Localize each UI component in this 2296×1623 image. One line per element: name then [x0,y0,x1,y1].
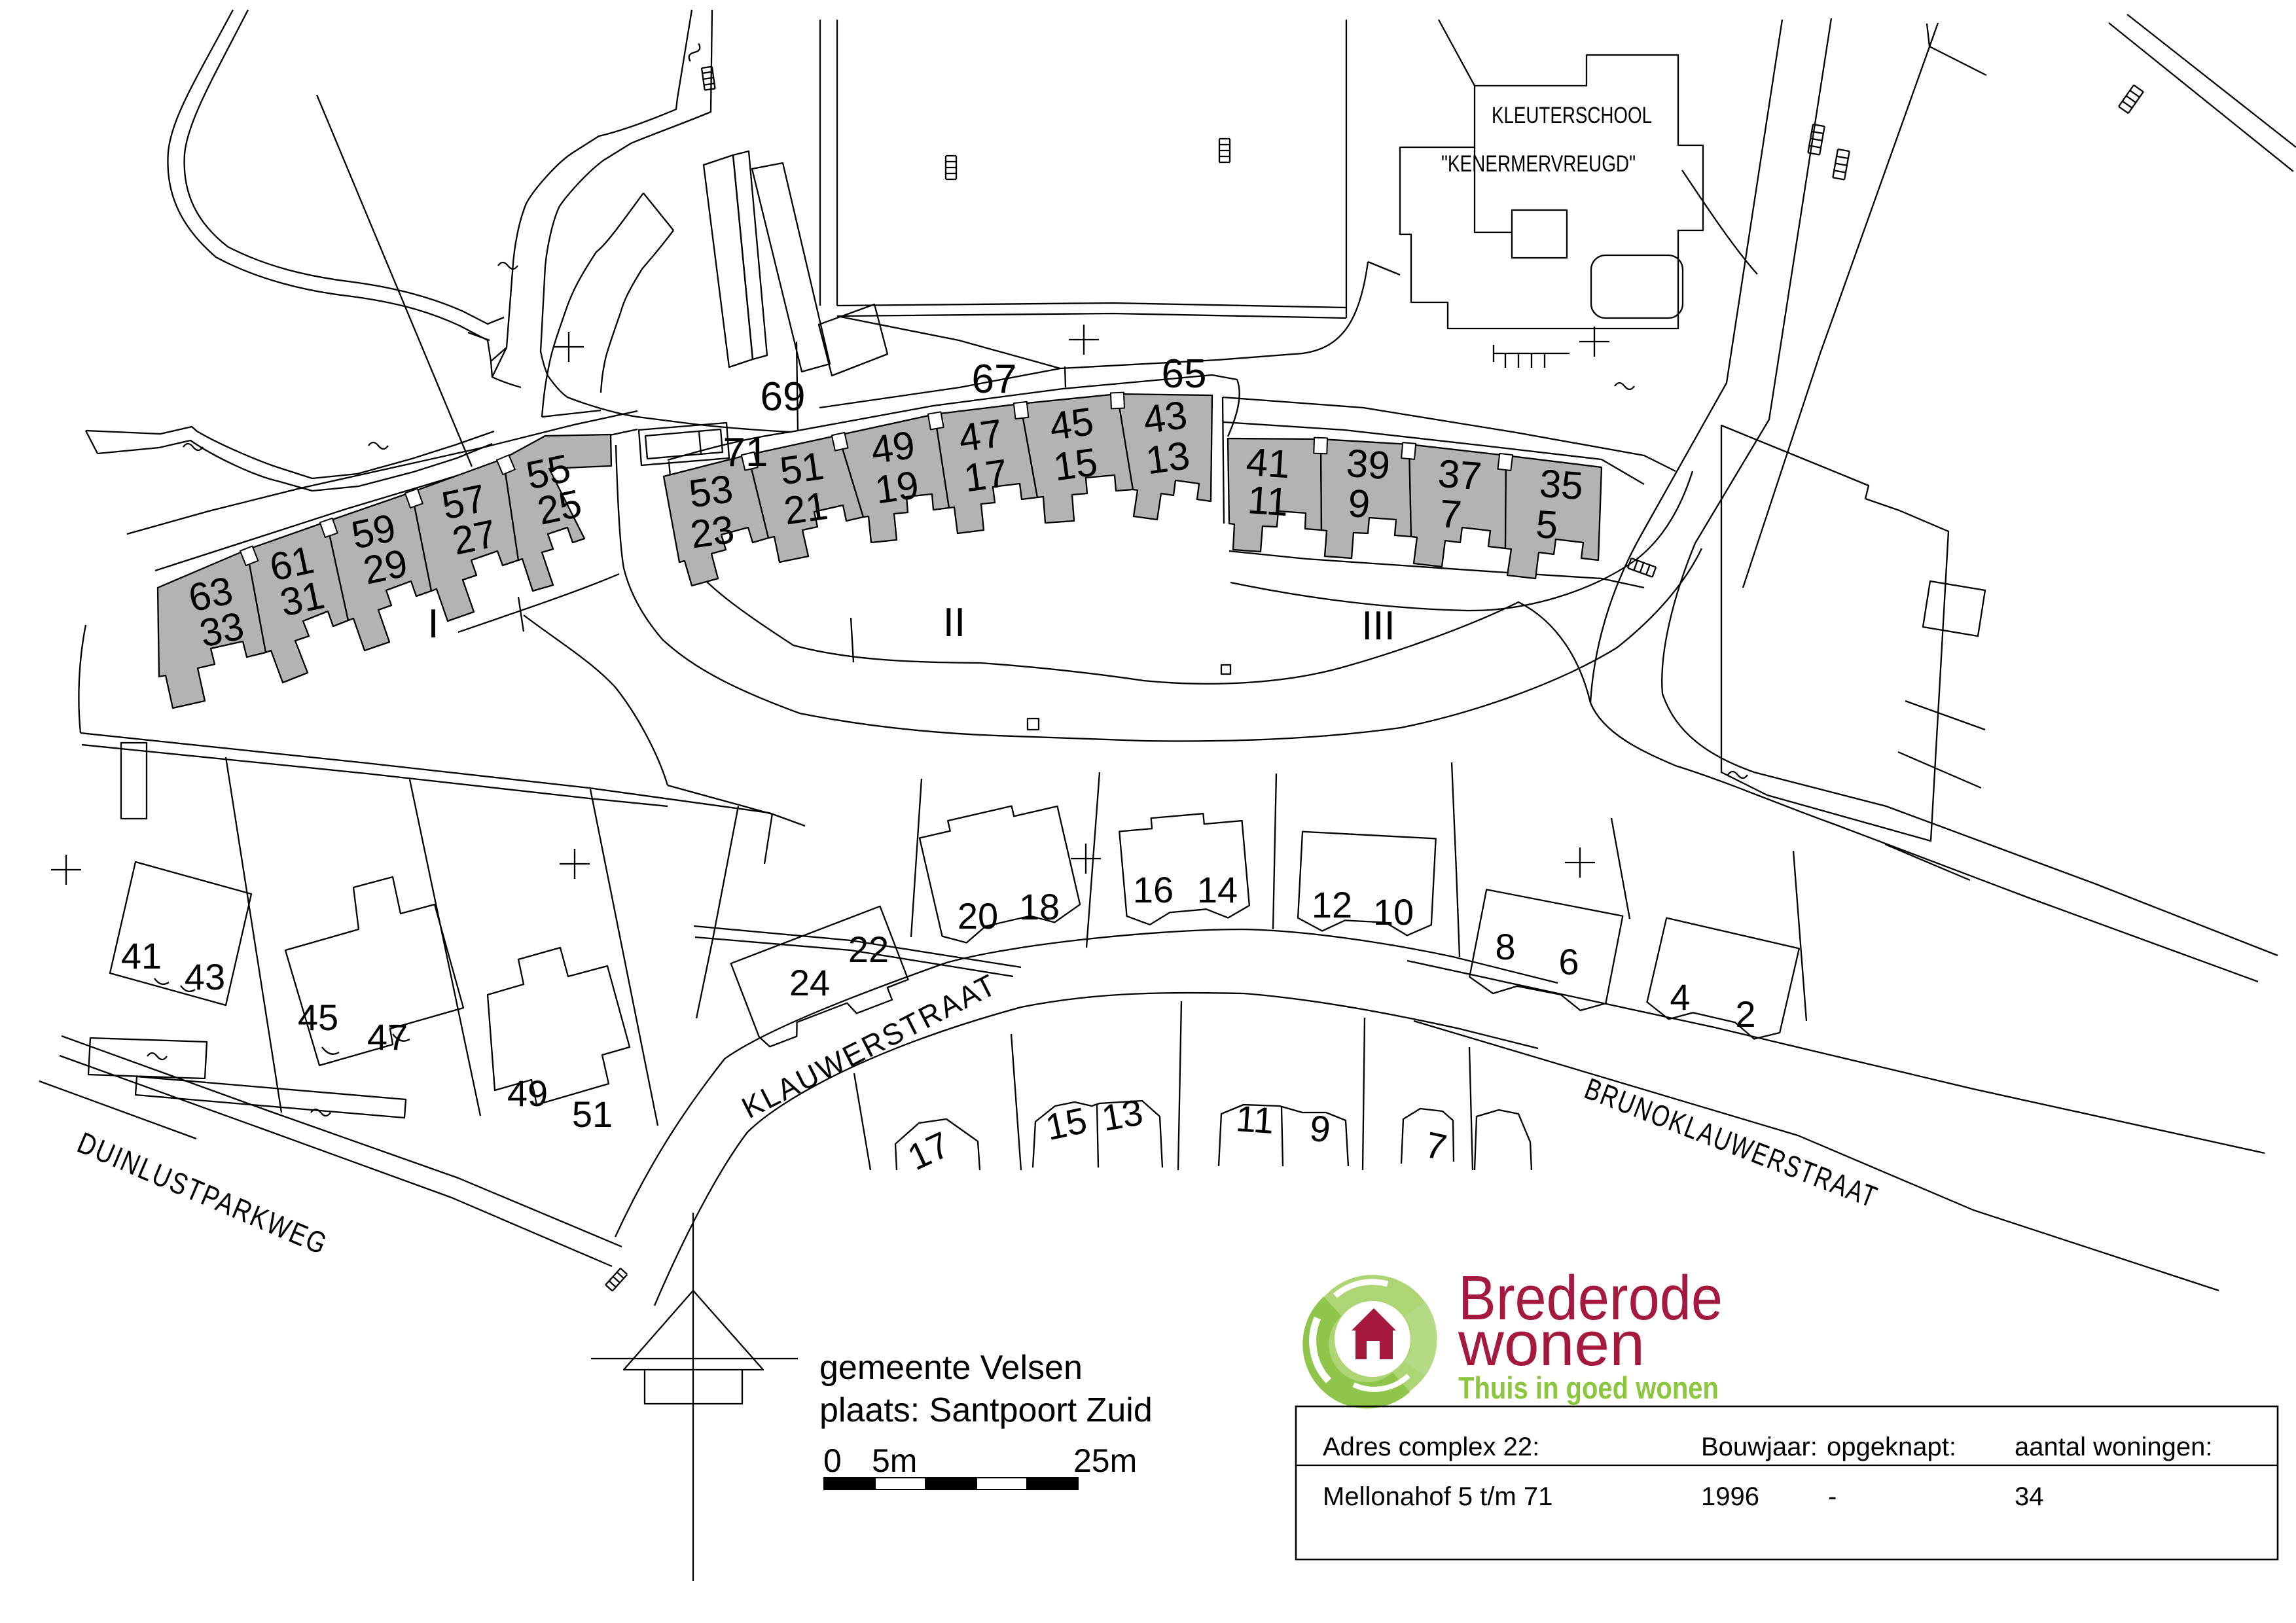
svg-text:9: 9 [1308,1107,1333,1150]
svg-text:aantal woningen:: aantal woningen: [2015,1433,2212,1461]
svg-text:11: 11 [1246,478,1290,524]
svg-text:34: 34 [2015,1482,2044,1511]
svg-text:-: - [1828,1482,1837,1511]
svg-text:17: 17 [961,451,1010,501]
svg-text:18: 18 [1019,886,1060,927]
svg-text:4: 4 [1670,976,1690,1018]
svg-text:0: 0 [823,1442,842,1479]
svg-text:67: 67 [972,357,1017,402]
svg-text:16: 16 [1133,869,1174,910]
svg-text:25: 25 [533,481,585,533]
svg-text:25m: 25m [1073,1442,1137,1479]
svg-text:12: 12 [1312,884,1352,925]
svg-text:69: 69 [761,374,806,419]
svg-text:19: 19 [872,463,921,512]
svg-text:24: 24 [789,962,830,1003]
svg-text:11: 11 [1234,1097,1275,1141]
svg-text:opgeknapt:: opgeknapt: [1827,1433,1956,1461]
svg-text:9: 9 [1346,481,1371,526]
svg-text:KLEUTERSCHOOL: KLEUTERSCHOOL [1492,103,1652,128]
svg-text:33: 33 [196,603,247,655]
svg-text:20: 20 [958,895,998,936]
svg-text:II: II [943,600,965,645]
svg-text:71: 71 [723,430,768,475]
svg-text:2: 2 [1735,993,1755,1035]
svg-text:43: 43 [185,956,225,997]
svg-text:22: 22 [848,929,889,970]
svg-text:14: 14 [1197,869,1238,910]
svg-text:1996: 1996 [1701,1482,1759,1511]
svg-text:51: 51 [572,1094,613,1135]
svg-text:Adres complex 22:: Adres complex 22: [1323,1433,1539,1461]
svg-text:Thuis in goed wonen: Thuis in goed wonen [1458,1370,1719,1405]
svg-text:III: III [1361,603,1395,649]
svg-text:8: 8 [1495,926,1515,967]
svg-text:Bouwjaar:: Bouwjaar: [1701,1433,1818,1461]
svg-text:29: 29 [359,541,411,592]
svg-text:15: 15 [1042,1099,1090,1149]
svg-text:I: I [427,601,439,647]
svg-text:"KENERMERVREUGD": "KENERMERVREUGD" [1441,151,1636,177]
svg-text:47: 47 [367,1016,408,1058]
svg-text:45: 45 [298,997,338,1038]
svg-text:wonen: wonen [1458,1309,1645,1379]
svg-text:31: 31 [276,573,328,624]
svg-text:13: 13 [1098,1091,1145,1139]
svg-text:Mellonahof 5 t/m 71: Mellonahof 5 t/m 71 [1323,1482,1552,1511]
svg-text:21: 21 [781,484,830,533]
svg-text:35: 35 [1538,461,1585,508]
svg-text:plaats: Santpoort Zuid: plaats: Santpoort Zuid [819,1391,1153,1429]
svg-text:gemeente Velsen: gemeente Velsen [819,1349,1083,1387]
svg-text:15: 15 [1050,440,1100,490]
svg-text:27: 27 [448,511,500,563]
svg-text:5: 5 [1534,502,1559,547]
svg-text:49: 49 [507,1073,548,1114]
svg-text:6: 6 [1558,941,1579,982]
svg-text:10: 10 [1373,891,1414,933]
svg-text:41: 41 [121,935,162,976]
svg-text:5m: 5m [872,1442,917,1479]
svg-text:13: 13 [1143,433,1192,483]
svg-text:7: 7 [1438,491,1463,537]
svg-text:23: 23 [687,507,736,557]
svg-text:65: 65 [1162,351,1207,397]
